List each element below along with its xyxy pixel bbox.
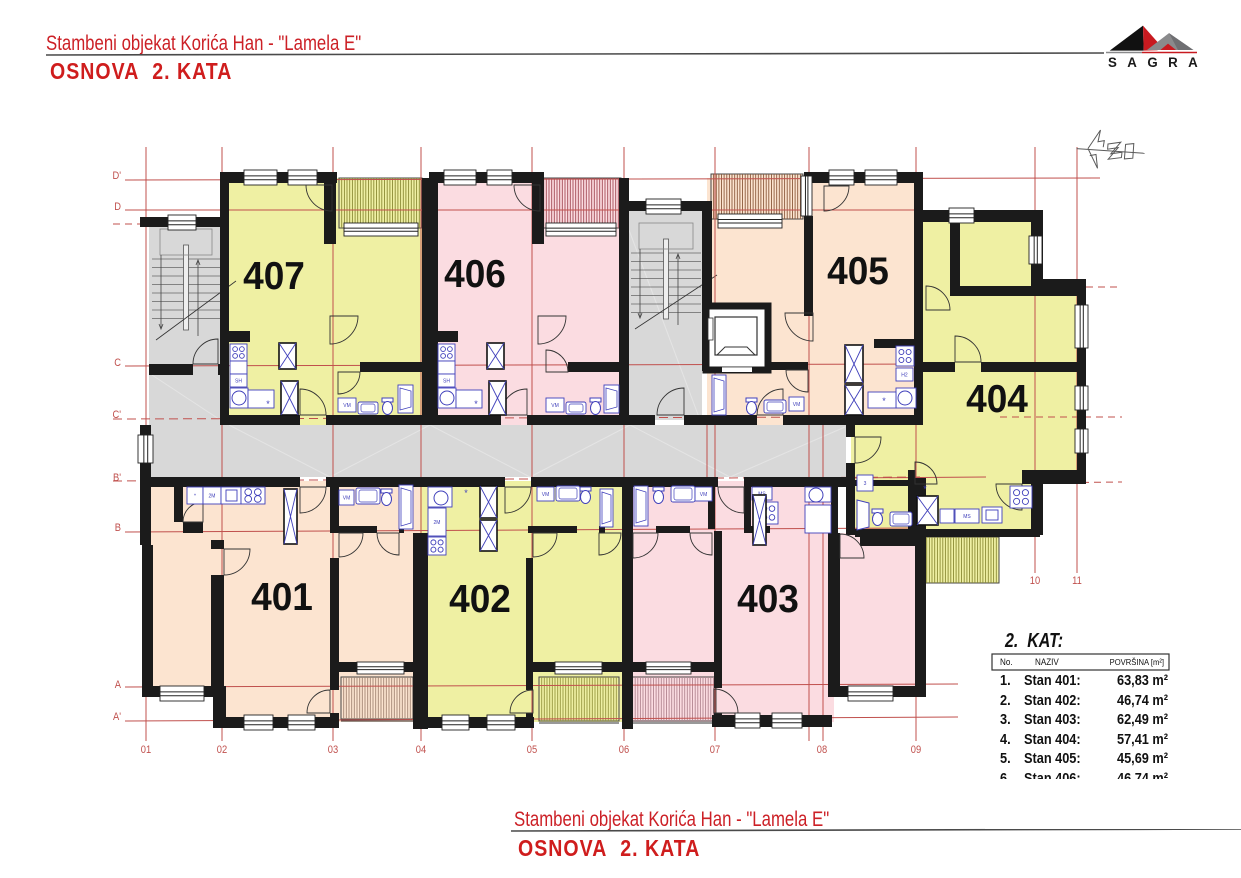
svg-text:401: 401 xyxy=(251,576,313,619)
svg-text:3.: 3. xyxy=(1000,710,1011,727)
svg-text:406: 406 xyxy=(444,253,506,296)
svg-text:VM: VM xyxy=(343,496,351,502)
svg-text:H2: H2 xyxy=(901,373,908,379)
svg-text:*: * xyxy=(882,396,886,406)
svg-text:403: 403 xyxy=(737,578,799,621)
svg-text:03: 03 xyxy=(328,744,339,756)
svg-text:SH: SH xyxy=(443,379,450,385)
svg-text:A': A' xyxy=(113,711,121,723)
svg-text:06: 06 xyxy=(619,744,630,756)
svg-text:OSNOVA 2. KATA: OSNOVA 2. KATA xyxy=(50,59,232,85)
svg-text:3: 3 xyxy=(864,481,867,487)
svg-text:407: 407 xyxy=(243,255,305,298)
svg-text:No.: No. xyxy=(1000,657,1013,668)
svg-text:4.: 4. xyxy=(1000,730,1011,747)
svg-text:2M: 2M xyxy=(434,520,441,526)
svg-text:VM: VM xyxy=(343,403,351,409)
svg-text:B': B' xyxy=(113,472,121,484)
svg-text:VM: VM xyxy=(700,492,708,498)
svg-text:57,41 m²: 57,41 m² xyxy=(1117,730,1168,747)
svg-text:Stan 403:: Stan 403: xyxy=(1024,710,1081,727)
svg-text:VM: VM xyxy=(793,402,801,408)
svg-text:C: C xyxy=(114,357,121,369)
svg-text:404: 404 xyxy=(966,378,1028,421)
svg-text:A: A xyxy=(115,679,121,691)
svg-text:VM: VM xyxy=(551,403,559,409)
svg-text:04: 04 xyxy=(416,744,427,756)
svg-text:2. KAT:: 2. KAT: xyxy=(1004,629,1063,651)
svg-text:Stan 402:: Stan 402: xyxy=(1024,691,1081,708)
svg-text:05: 05 xyxy=(527,744,538,756)
svg-text:07: 07 xyxy=(710,744,721,756)
svg-text:02: 02 xyxy=(217,744,228,756)
svg-text:*: * xyxy=(923,484,927,494)
svg-text:10: 10 xyxy=(1030,575,1041,587)
svg-text:5.: 5. xyxy=(1000,749,1011,766)
svg-text:*: * xyxy=(464,488,468,498)
svg-text:46,74 m²: 46,74 m² xyxy=(1117,691,1168,708)
svg-text:D: D xyxy=(114,201,121,213)
svg-text:B: B xyxy=(115,522,121,534)
svg-text:45,69 m²: 45,69 m² xyxy=(1117,749,1168,766)
svg-text:63,83 m²: 63,83 m² xyxy=(1117,671,1168,688)
svg-text:OSNOVA 2. KATA: OSNOVA 2. KATA xyxy=(518,836,700,862)
svg-text:SH: SH xyxy=(235,379,242,385)
svg-text:11: 11 xyxy=(1072,575,1082,587)
svg-text:*: * xyxy=(474,399,478,409)
svg-text:01: 01 xyxy=(141,744,152,756)
svg-text:1.: 1. xyxy=(1000,671,1011,688)
svg-text:402: 402 xyxy=(449,578,511,621)
svg-text:C': C' xyxy=(112,409,121,421)
svg-text:Stambeni objekat Korića Han -: Stambeni objekat Korića Han - "Lamela E" xyxy=(514,808,829,831)
svg-text:Stan 405:: Stan 405: xyxy=(1024,749,1081,766)
svg-text:D': D' xyxy=(112,170,121,182)
svg-text:2M: 2M xyxy=(209,494,216,500)
svg-text:2.: 2. xyxy=(1000,691,1011,708)
svg-text:62,49 m²: 62,49 m² xyxy=(1117,710,1168,727)
svg-text:Stan 401:: Stan 401: xyxy=(1024,671,1081,688)
svg-text:*: * xyxy=(266,399,270,409)
svg-text:VM: VM xyxy=(542,492,550,498)
svg-text:08: 08 xyxy=(817,744,828,756)
svg-text:Stan 404:: Stan 404: xyxy=(1024,730,1081,747)
svg-text:SAGRA: SAGRA xyxy=(1108,55,1208,70)
svg-text:09: 09 xyxy=(911,744,922,756)
svg-text:405: 405 xyxy=(827,250,889,293)
svg-text:NAZIV: NAZIV xyxy=(1035,657,1059,668)
svg-text:*: * xyxy=(194,494,196,500)
svg-text:MS: MS xyxy=(963,514,971,520)
svg-text:Stambeni objekat Korića Han -: Stambeni objekat Korića Han - "Lamela E" xyxy=(46,32,361,55)
svg-text:POVRŠINA [m²]: POVRŠINA [m²] xyxy=(1110,658,1164,667)
